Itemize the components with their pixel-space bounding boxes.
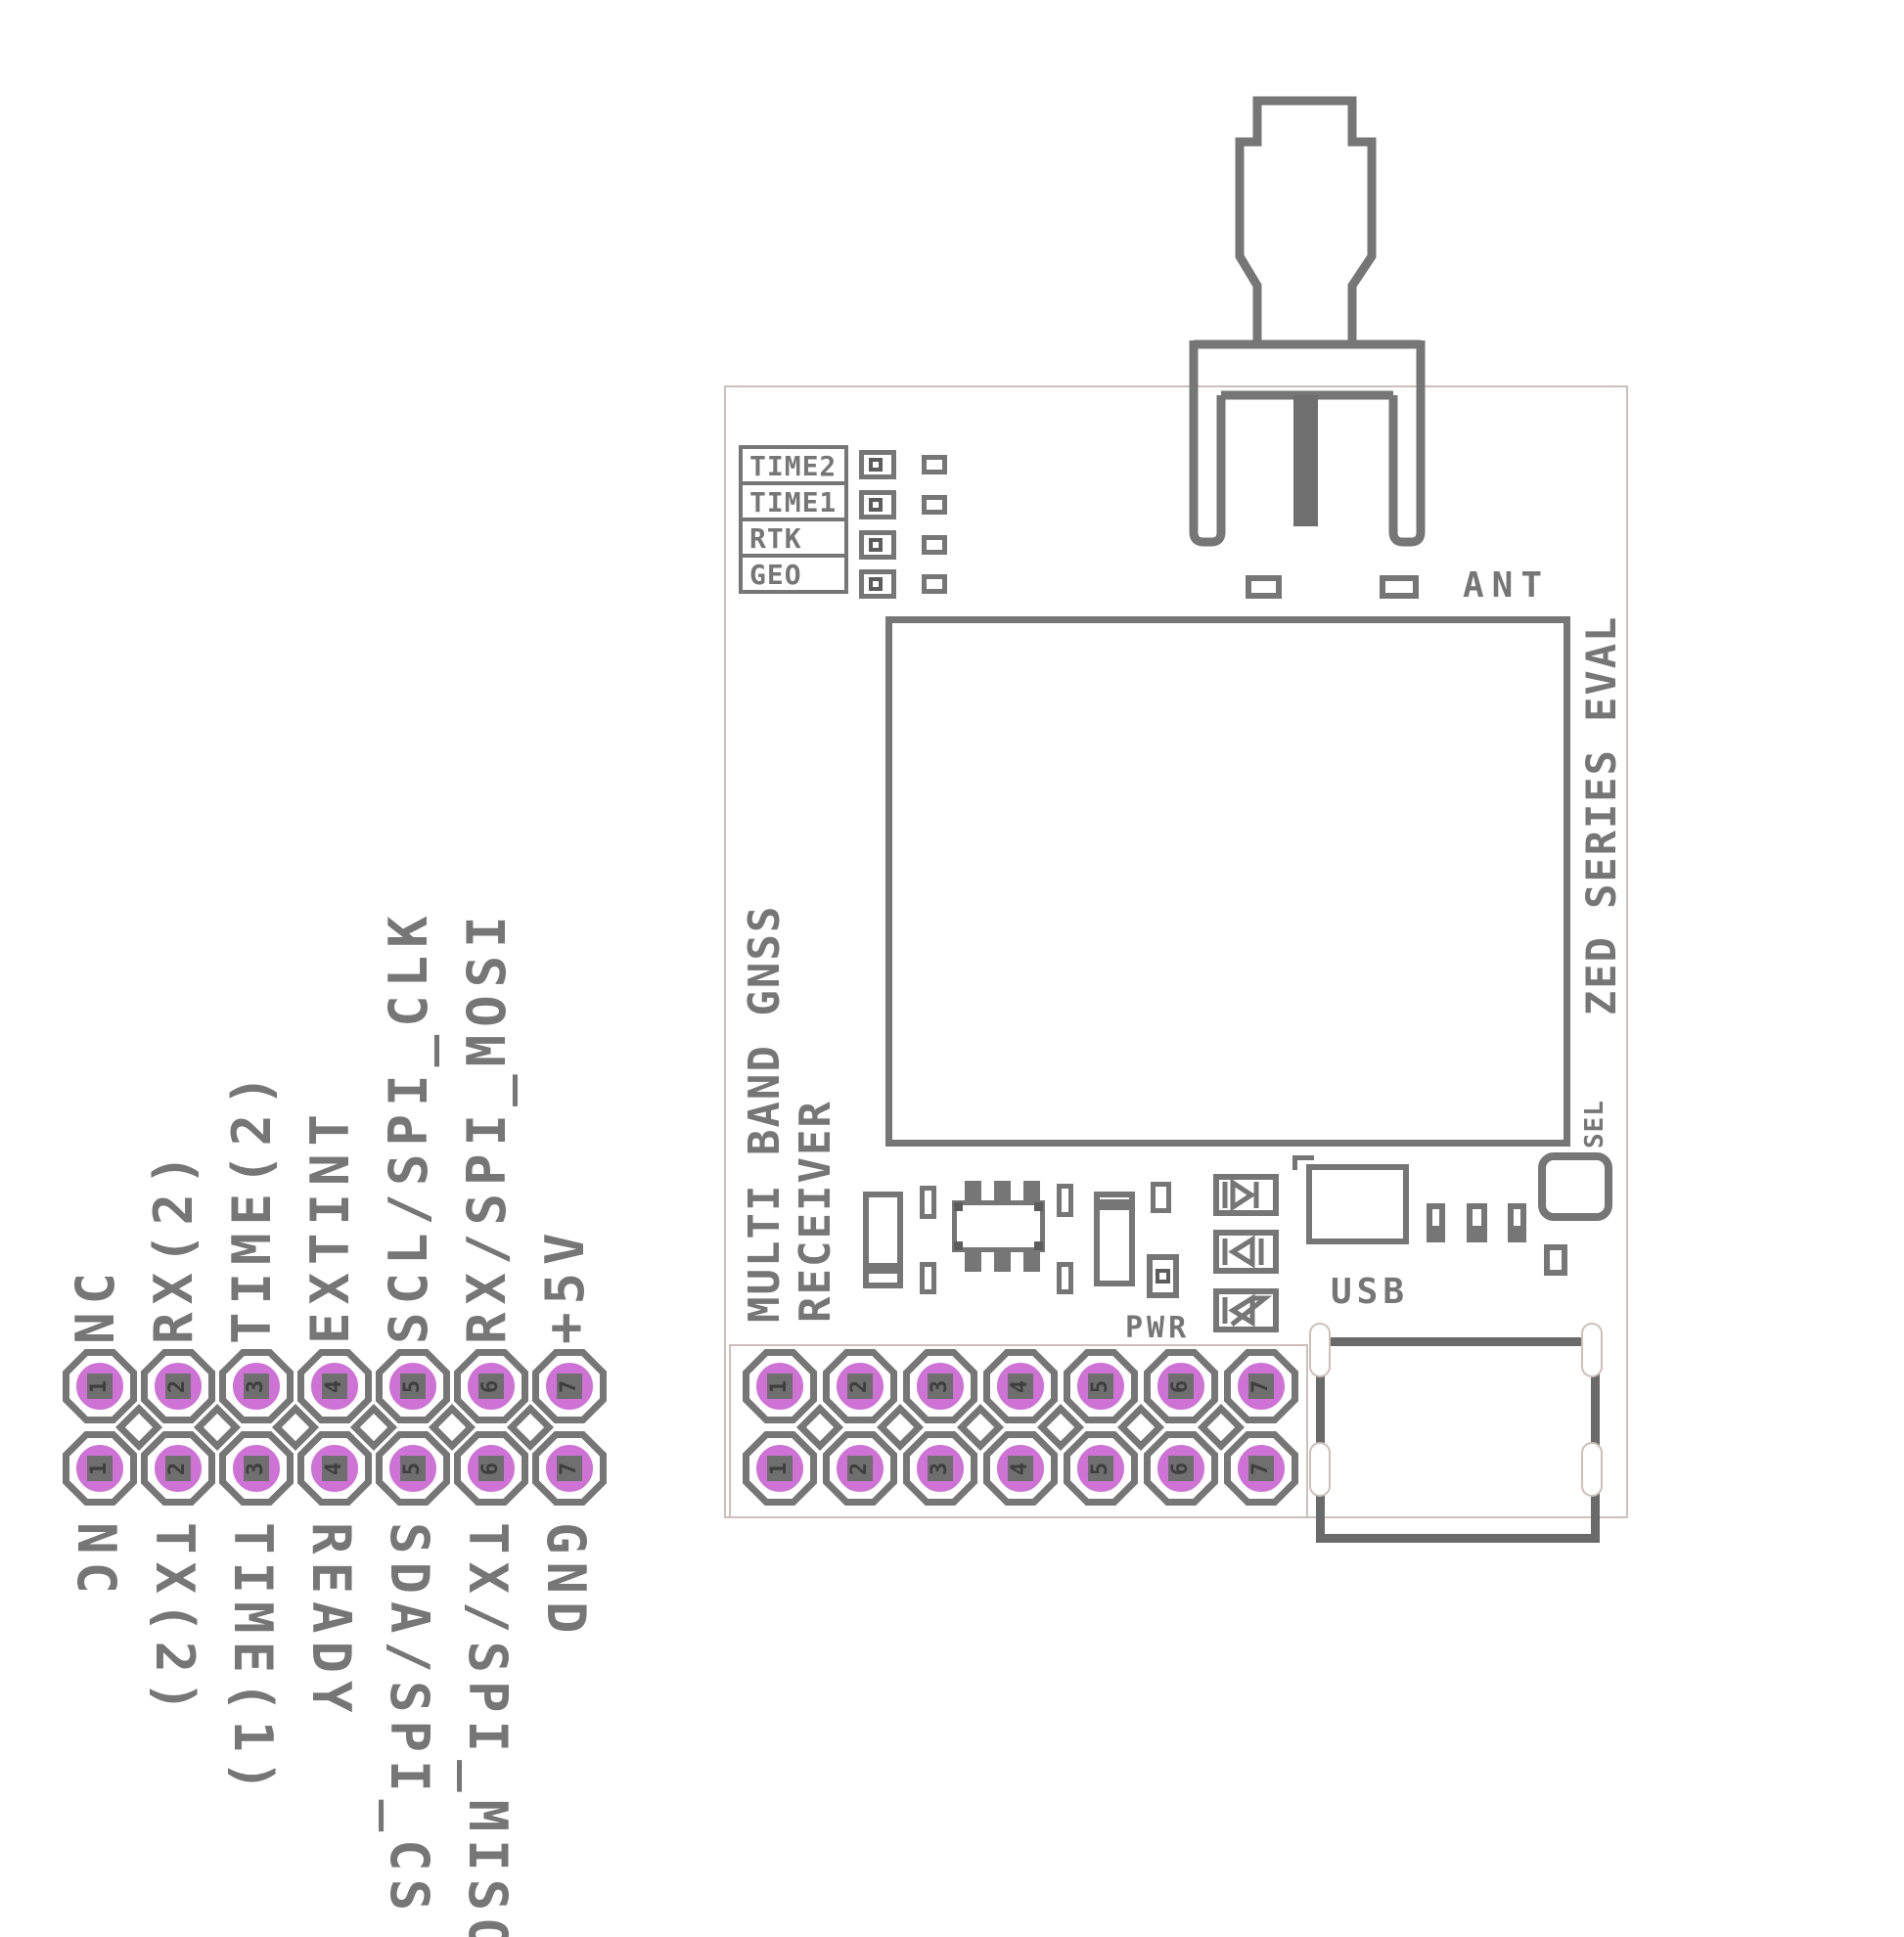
- pad-center-square: 5: [1088, 1374, 1113, 1399]
- pin-pad[interactable]: 4: [983, 1431, 1058, 1506]
- pinout-diagram: TIME2TIME1RTKGEO ANT MULTI BAND GNSS REC…: [0, 0, 1904, 1937]
- capacitor-band: [1094, 1199, 1135, 1210]
- led-footprint-core: [869, 538, 883, 552]
- gnss-module-outline: [885, 616, 1570, 1147]
- led-footprint-core: [869, 498, 883, 512]
- pin-pad[interactable]: 7: [1224, 1431, 1298, 1506]
- usb-label: USB: [1331, 1272, 1409, 1312]
- pin-number: 4: [323, 1462, 347, 1474]
- led-footprint-core: [869, 577, 883, 591]
- pin-number: 7: [1249, 1462, 1274, 1474]
- pin-pad[interactable]: 6: [454, 1431, 528, 1506]
- pad-center-square: 3: [928, 1456, 953, 1481]
- pin-number: 3: [245, 1462, 269, 1474]
- diode-symbol-right-icon: [1219, 1179, 1273, 1211]
- pin-pad[interactable]: 6: [1144, 1431, 1218, 1506]
- pin-number: 2: [166, 1462, 191, 1474]
- pin-pad[interactable]: 7: [532, 1349, 607, 1423]
- pad-center-square: 2: [847, 1374, 873, 1399]
- pin-pad[interactable]: 1: [743, 1431, 817, 1506]
- ic-corner: [954, 1241, 963, 1250]
- pin-number: 4: [1009, 1462, 1033, 1474]
- led-footprint-core: [869, 458, 883, 472]
- sel-button[interactable]: [1538, 1152, 1612, 1221]
- pin-pad[interactable]: 7: [532, 1431, 607, 1506]
- ic-pin: [994, 1251, 1011, 1272]
- sma-center-pin: [1293, 395, 1318, 526]
- pin-pad[interactable]: 7: [1224, 1349, 1298, 1423]
- led-footprint: [859, 569, 896, 599]
- pin-number: 4: [1009, 1379, 1033, 1392]
- ic-corner: [1034, 1202, 1043, 1211]
- pin-number: 5: [1089, 1462, 1113, 1474]
- smd-pad: [1544, 1244, 1567, 1276]
- pad-center-square: 7: [1248, 1374, 1274, 1399]
- pin-number: 2: [848, 1462, 873, 1474]
- pad-center-square: 1: [87, 1374, 113, 1399]
- pin-pad[interactable]: 6: [1144, 1349, 1218, 1423]
- usb-corner-mark: [1292, 1155, 1297, 1170]
- ic-pin: [965, 1251, 981, 1272]
- pad-center-square: 1: [87, 1456, 113, 1481]
- pin-number: 5: [401, 1462, 426, 1474]
- pin-number: 5: [401, 1379, 426, 1392]
- led-series-pad: [922, 455, 947, 474]
- diode-symbol-left-slash-icon: [1219, 1294, 1273, 1327]
- pad-center-square: 6: [1168, 1456, 1194, 1481]
- led-series-pad: [922, 535, 947, 555]
- pin-pad[interactable]: 2: [141, 1349, 215, 1423]
- pwr-label: PWR: [1125, 1311, 1190, 1345]
- ic-corner: [954, 1202, 963, 1211]
- pin-number: 6: [1169, 1462, 1194, 1474]
- usb-connector-body[interactable]: [1316, 1337, 1600, 1543]
- pad-center-square: 1: [767, 1374, 793, 1399]
- led-footprint: [859, 490, 896, 519]
- pin-pad[interactable]: 5: [376, 1431, 450, 1506]
- usb-mount-slot: [1309, 1442, 1331, 1497]
- ic-pin: [1023, 1251, 1040, 1272]
- ic-pin: [994, 1181, 1011, 1201]
- pin-number: 1: [88, 1462, 113, 1474]
- pin-pad[interactable]: 5: [376, 1349, 450, 1423]
- pin-pad[interactable]: 3: [903, 1349, 977, 1423]
- pad-center-square: 7: [557, 1456, 582, 1481]
- pin-number: 6: [1169, 1379, 1194, 1392]
- pad-center-square: 6: [1168, 1374, 1194, 1399]
- pin-pad[interactable]: 5: [1064, 1349, 1138, 1423]
- pin-number: 7: [558, 1379, 582, 1392]
- pad-center-square: 3: [928, 1374, 953, 1399]
- pad-center-square: 2: [165, 1374, 191, 1399]
- smd-pad: [1057, 1184, 1073, 1217]
- pad-center-square: 6: [478, 1456, 504, 1481]
- smd-pad: [920, 1262, 936, 1294]
- smd-pad: [1427, 1203, 1445, 1242]
- pin-pad[interactable]: 1: [743, 1349, 817, 1423]
- pin-pad[interactable]: 1: [63, 1349, 137, 1423]
- pin-number: 1: [88, 1379, 113, 1392]
- pad-center-square: 2: [847, 1456, 873, 1481]
- pin-number: 7: [558, 1462, 582, 1474]
- capacitor: [863, 1192, 903, 1288]
- smd-pad: [1508, 1203, 1526, 1242]
- pin-pad[interactable]: 1: [63, 1431, 137, 1506]
- pad-center-square: 7: [1248, 1456, 1274, 1481]
- ant-pad: [1246, 575, 1282, 599]
- pad-center-square: 7: [557, 1374, 582, 1399]
- led-series-pad: [922, 495, 947, 515]
- pin-number: 7: [1249, 1379, 1274, 1392]
- ic-pin: [1023, 1181, 1040, 1201]
- smd-pad: [1467, 1203, 1487, 1242]
- capacitor-band: [863, 1263, 903, 1274]
- pad-center-square: 5: [400, 1374, 426, 1399]
- sma-antenna-connector: [1164, 78, 1448, 567]
- pad-center-square: 1: [767, 1456, 793, 1481]
- pin-pad[interactable]: 4: [297, 1431, 372, 1506]
- pad-center-square: 4: [1008, 1374, 1033, 1399]
- pin-number: 2: [166, 1379, 191, 1392]
- pin-number: 6: [479, 1379, 504, 1392]
- pin-pad[interactable]: 6: [454, 1349, 528, 1423]
- pin-number: 6: [479, 1462, 504, 1474]
- ic-body: [952, 1200, 1045, 1252]
- led-label-table: TIME2TIME1RTKGEO: [739, 445, 848, 594]
- pad-center-square: 5: [1088, 1456, 1113, 1481]
- usb-mount-slot: [1581, 1442, 1603, 1497]
- pin-pad[interactable]: 4: [297, 1349, 372, 1423]
- pad-center-square: 4: [322, 1374, 347, 1399]
- pin-pad[interactable]: 3: [903, 1431, 977, 1506]
- led-series-pad: [922, 574, 947, 594]
- pin-number: 1: [768, 1379, 793, 1392]
- pin-pad[interactable]: 3: [219, 1349, 294, 1423]
- smd-pad: [1057, 1262, 1073, 1294]
- pin-pad[interactable]: 4: [983, 1349, 1058, 1423]
- ic-corner: [1034, 1241, 1043, 1250]
- led-table-row-geo: GEO: [739, 554, 848, 594]
- pin-number: 1: [768, 1462, 793, 1474]
- led-footprint: [859, 450, 896, 479]
- led-footprint: [859, 530, 896, 560]
- pin-pad[interactable]: 2: [823, 1431, 897, 1506]
- pin-pad[interactable]: 5: [1064, 1431, 1138, 1506]
- ant-pad: [1380, 575, 1419, 599]
- smd-pad: [1151, 1182, 1171, 1213]
- led-table-row-time2: TIME2: [739, 445, 848, 485]
- usb-mount-slot: [1581, 1323, 1603, 1377]
- pin-number: 3: [929, 1462, 953, 1474]
- smd-component-core: [1156, 1269, 1170, 1284]
- pin-pad[interactable]: 2: [823, 1349, 897, 1423]
- pad-center-square: 4: [1008, 1456, 1033, 1481]
- pad-center-square: 2: [165, 1456, 191, 1481]
- pad-center-square: 5: [400, 1456, 426, 1481]
- pin-number: 4: [323, 1379, 347, 1392]
- diode-symbol-left-icon: [1219, 1236, 1273, 1268]
- pin-number: 3: [929, 1379, 953, 1392]
- led-table-row-time1: TIME1: [739, 481, 848, 521]
- smd-pad: [920, 1186, 936, 1219]
- usb-mount-slot: [1309, 1323, 1331, 1377]
- ant-label: ANT: [1463, 565, 1550, 606]
- pin-number: 3: [245, 1379, 269, 1392]
- ic-pin: [965, 1181, 981, 1201]
- pad-center-square: 4: [322, 1456, 347, 1481]
- pin-number: 5: [1089, 1379, 1113, 1392]
- led-table-row-rtk: RTK: [739, 518, 848, 558]
- pad-center-square: 3: [244, 1374, 269, 1399]
- pin-pad[interactable]: 2: [141, 1431, 215, 1506]
- pad-center-square: 3: [244, 1456, 269, 1481]
- pin-number: 2: [848, 1379, 873, 1392]
- pin-pad[interactable]: 3: [219, 1431, 294, 1506]
- pad-center-square: 6: [478, 1374, 504, 1399]
- usb-ic-footprint: [1306, 1164, 1409, 1244]
